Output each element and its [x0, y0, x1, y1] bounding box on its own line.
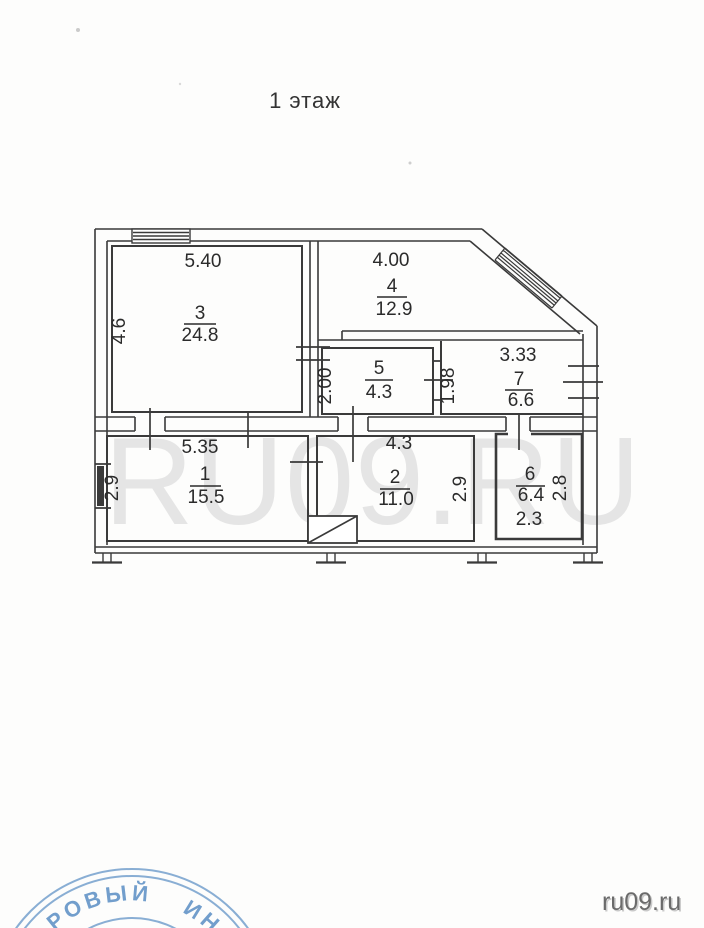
room-6-height-dim: 2.8	[550, 475, 571, 501]
room-5-height-dim: 2.00	[315, 368, 336, 405]
room-3-number: 3	[195, 303, 206, 324]
room-6-area: 6.4	[518, 485, 545, 506]
room-5-number: 5	[374, 358, 385, 379]
room-7-height-dim: 1.98	[438, 368, 459, 405]
room-7-width-dim: 3.33	[500, 345, 537, 366]
floor-plan-canvas: RU09.RU 1 этаж	[0, 0, 704, 928]
room-1-width-dim: 5.35	[182, 437, 219, 458]
room-6-inner-width-dim: 2.3	[516, 509, 542, 530]
site-mark: ru09.ru ru09.ru	[602, 888, 683, 918]
room-3-height-dim: 4.6	[109, 318, 130, 344]
room-4-area: 12.9	[376, 299, 413, 320]
room-6-number: 6	[525, 464, 536, 485]
room-3-width-dim: 5.40	[185, 251, 222, 272]
room-2-area: 11.0	[378, 489, 414, 510]
room-5-area: 4.3	[366, 382, 392, 403]
room-4-width-dim: 4.00	[373, 250, 410, 271]
room-1-area: 15.5	[188, 487, 225, 508]
room-4-number: 4	[387, 276, 398, 297]
room-7-number: 7	[514, 369, 525, 390]
scanned-floor-plan-page: RU09.RU 1 этаж	[0, 0, 704, 928]
page-title: 1 этаж	[269, 88, 341, 113]
room-3-area: 24.8	[182, 325, 219, 346]
site-mark-text: ru09.ru	[602, 888, 681, 916]
room-2-width-dim: 4.3	[386, 433, 412, 454]
room-1-number: 1	[200, 464, 211, 485]
staircase	[308, 516, 357, 543]
room-2-height-dim: 2.9	[450, 476, 471, 502]
window-top-wall	[132, 229, 190, 243]
room-1-height-dim: 2.9	[102, 475, 123, 501]
room-2-number: 2	[390, 467, 401, 488]
room-7-area: 6.6	[508, 390, 534, 411]
